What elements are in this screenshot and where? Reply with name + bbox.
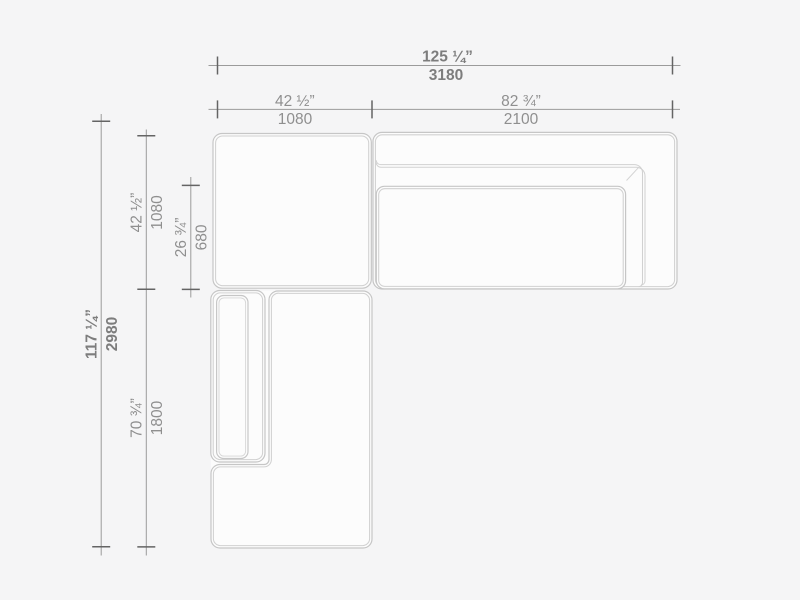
svg-text:1800: 1800 [149,400,166,435]
svg-text:82 ¾”: 82 ¾” [501,93,541,110]
svg-text:26 ¾”: 26 ¾” [173,218,190,258]
svg-text:1080: 1080 [149,195,166,230]
svg-text:42 ½”: 42 ½” [275,93,315,110]
svg-text:70 ¾”: 70 ¾” [129,398,146,438]
svg-text:680: 680 [194,224,211,250]
svg-text:125 ¼”: 125 ¼” [422,49,473,66]
svg-text:3180: 3180 [429,67,463,84]
svg-text:42 ½”: 42 ½” [129,193,146,233]
svg-text:117 ¼”: 117 ¼” [84,309,101,359]
svg-text:2100: 2100 [504,111,539,128]
svg-text:1080: 1080 [278,111,313,128]
svg-text:2980: 2980 [104,317,121,351]
